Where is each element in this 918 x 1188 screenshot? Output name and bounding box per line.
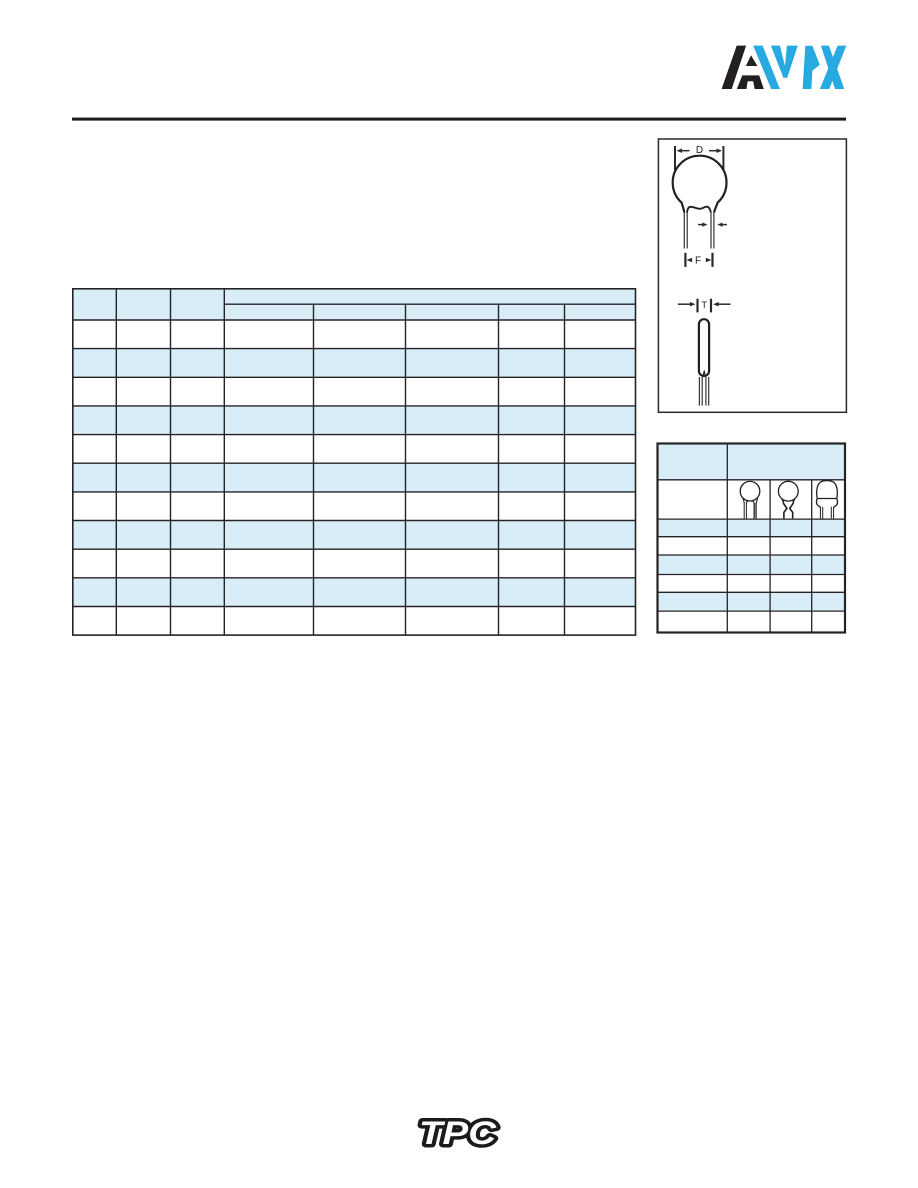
svg-text:D: D <box>696 145 703 156</box>
svg-text:F: F <box>695 255 701 266</box>
svg-text:T: T <box>702 300 708 310</box>
svg-text:TPC: TPC <box>419 1115 497 1151</box>
